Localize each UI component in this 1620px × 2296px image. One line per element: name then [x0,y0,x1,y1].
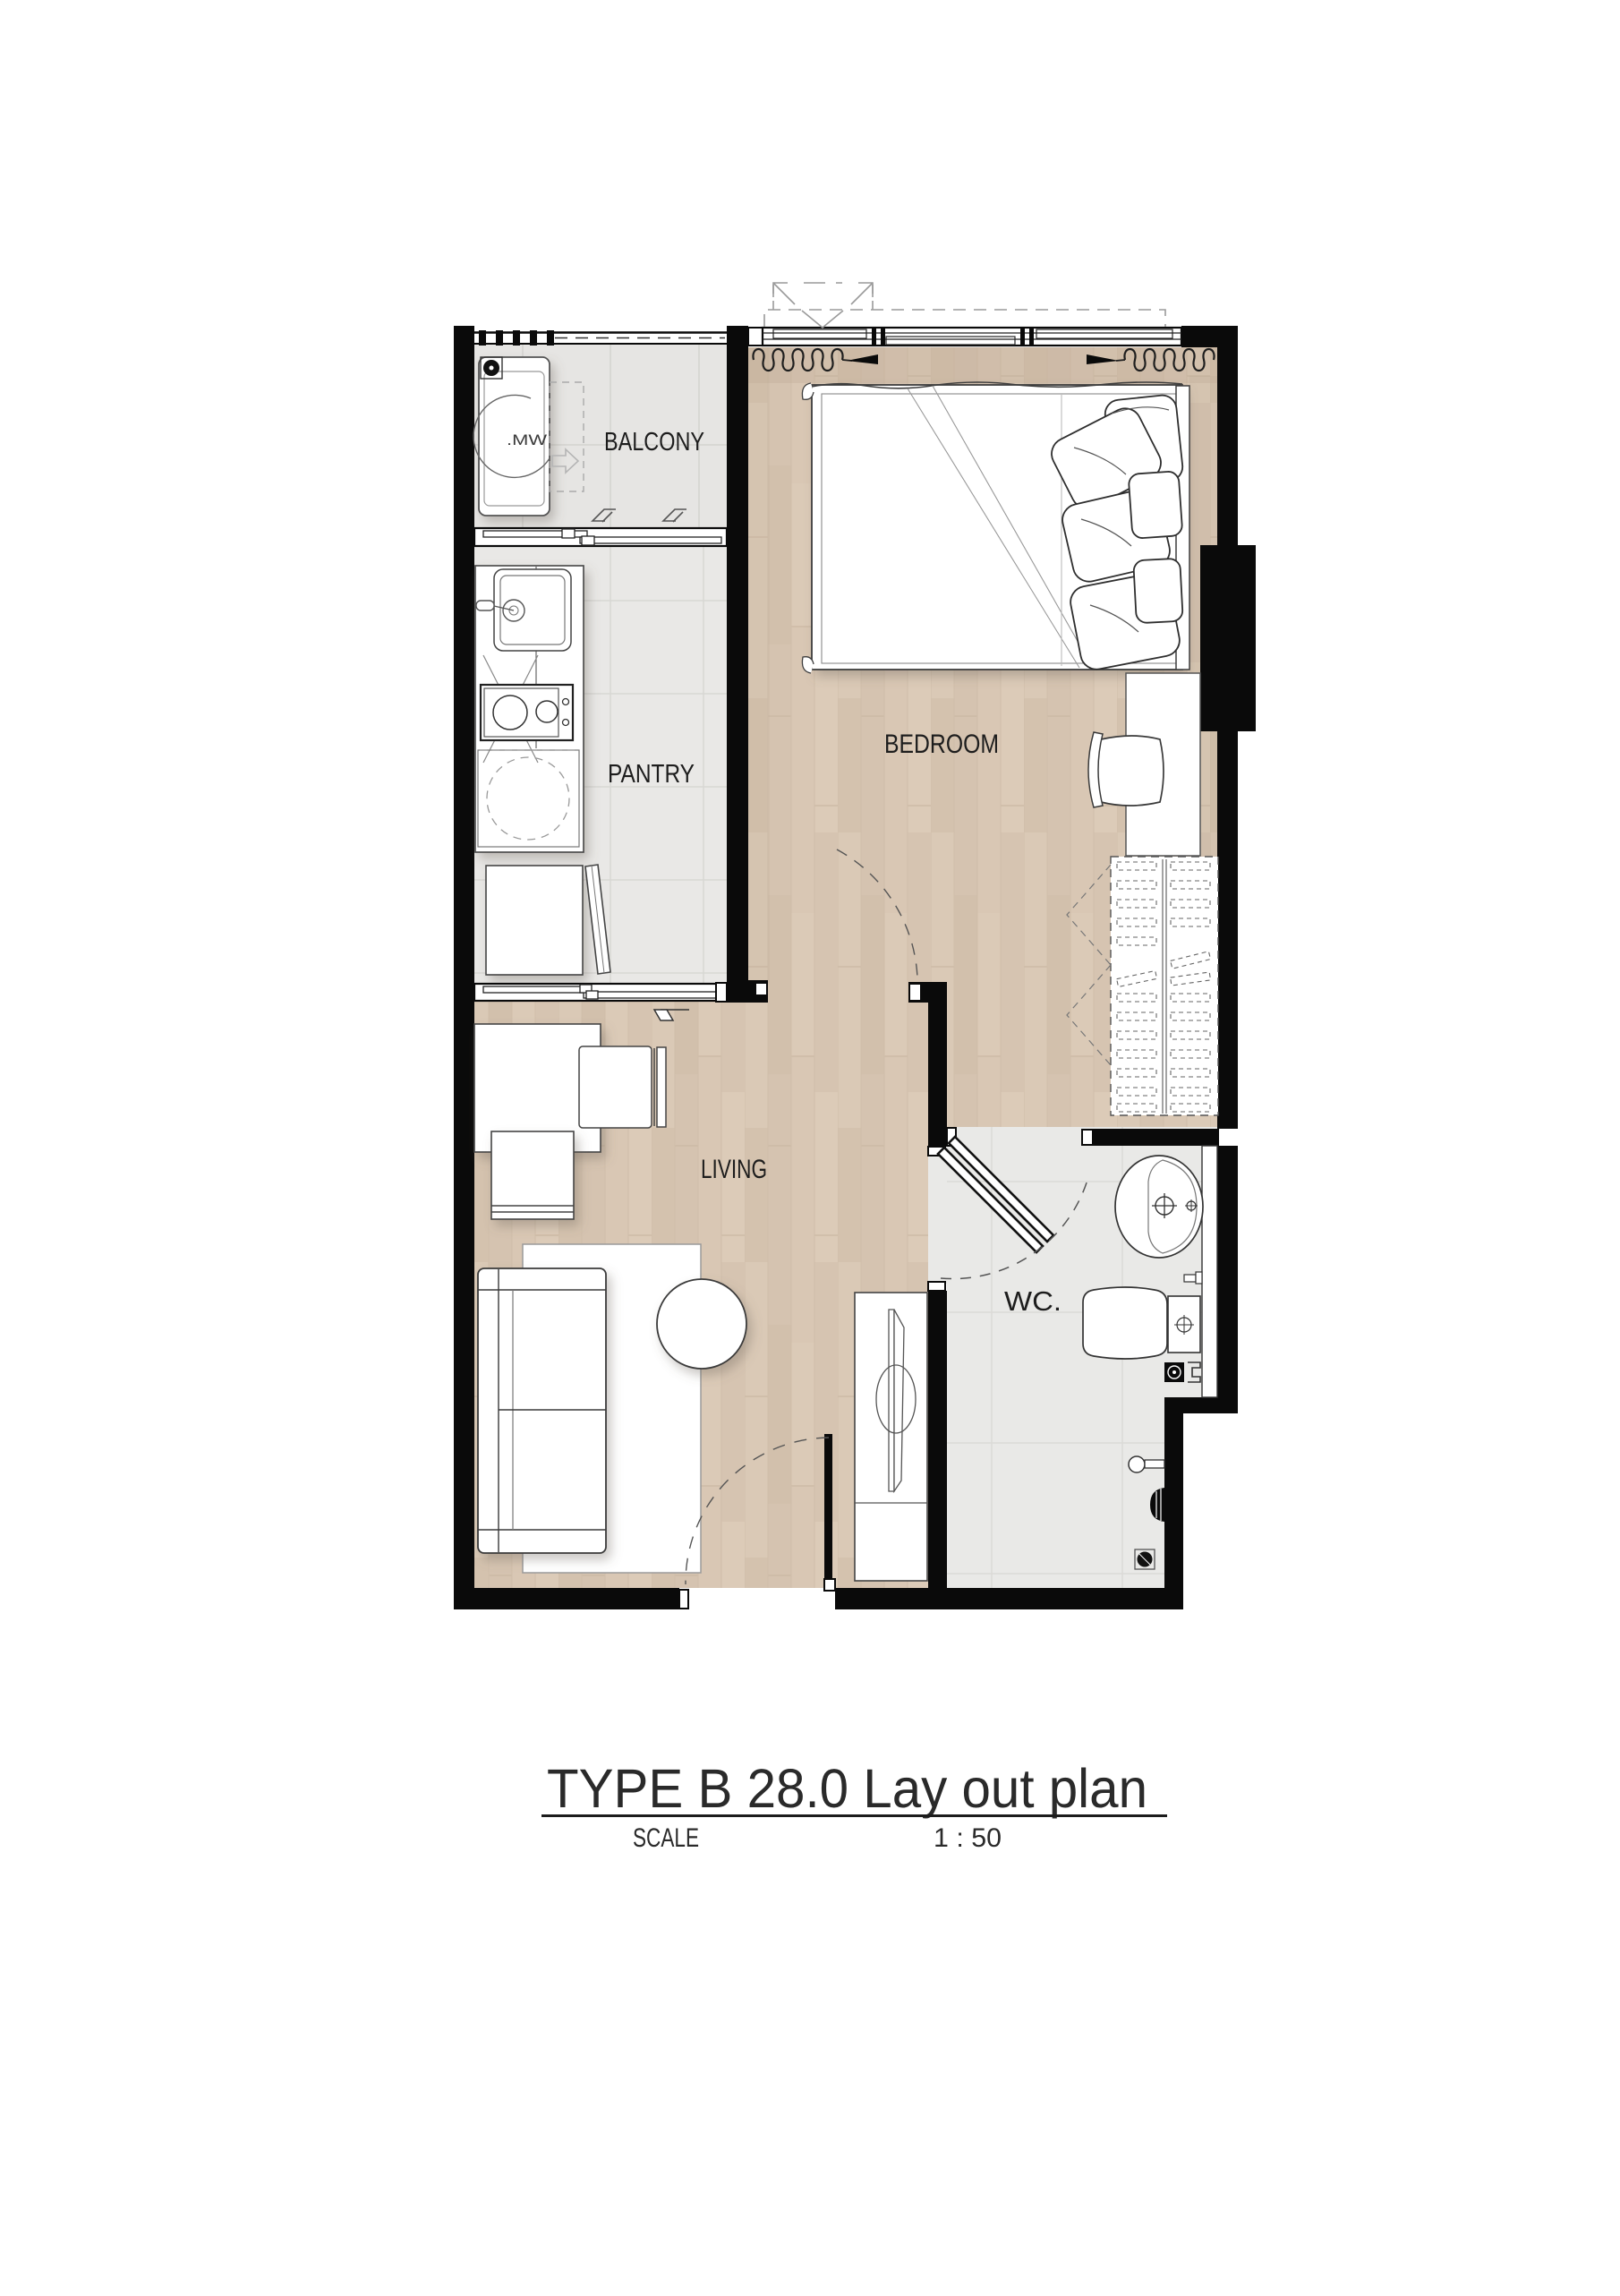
svg-text:WC.: WC. [1004,1285,1062,1317]
svg-text:BEDROOM: BEDROOM [884,730,999,759]
svg-text:.MW: .MW [507,431,547,448]
svg-text:1 : 50: 1 : 50 [934,1823,1002,1853]
svg-text:TYPE B 28.0 Lay out plan: TYPE B 28.0 Lay out plan [547,1758,1147,1819]
svg-text:PANTRY: PANTRY [608,760,695,789]
svg-text:LIVING: LIVING [701,1155,767,1184]
svg-text:BALCONY: BALCONY [604,428,704,457]
svg-text:SCALE: SCALE [633,1823,699,1853]
